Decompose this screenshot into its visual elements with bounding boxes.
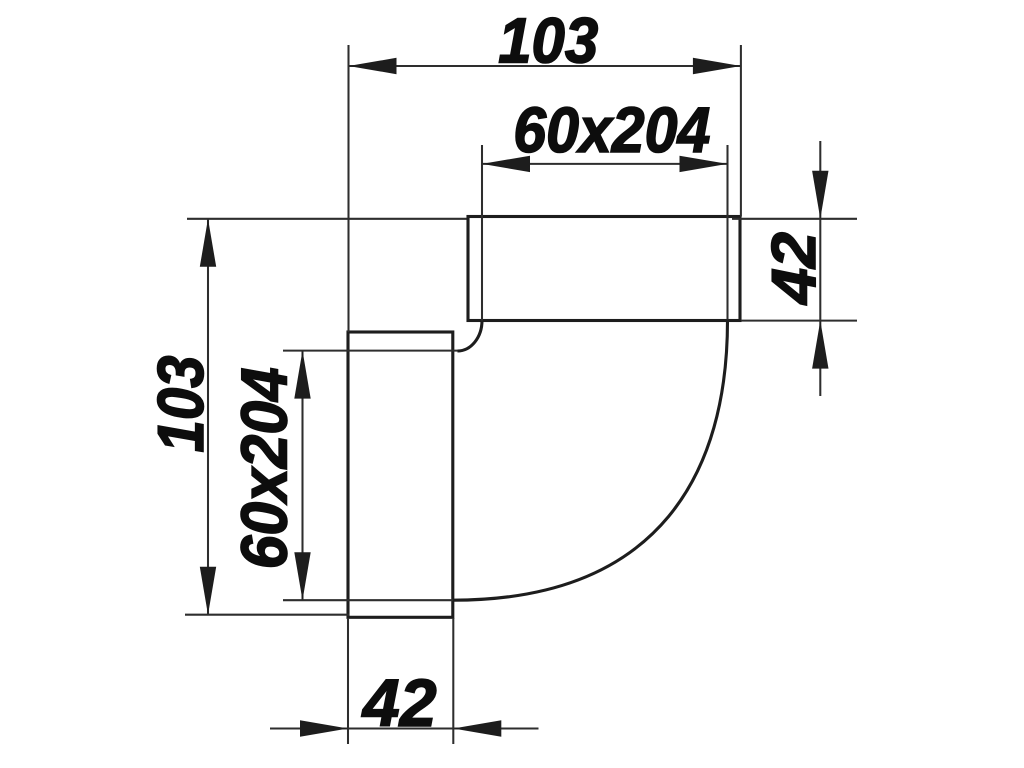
svg-text:60x204: 60x204 xyxy=(229,367,301,569)
svg-text:103: 103 xyxy=(498,5,598,77)
svg-text:60x204: 60x204 xyxy=(513,94,710,166)
svg-text:103: 103 xyxy=(145,355,217,452)
svg-text:42: 42 xyxy=(361,666,437,741)
svg-text:42: 42 xyxy=(760,232,829,306)
